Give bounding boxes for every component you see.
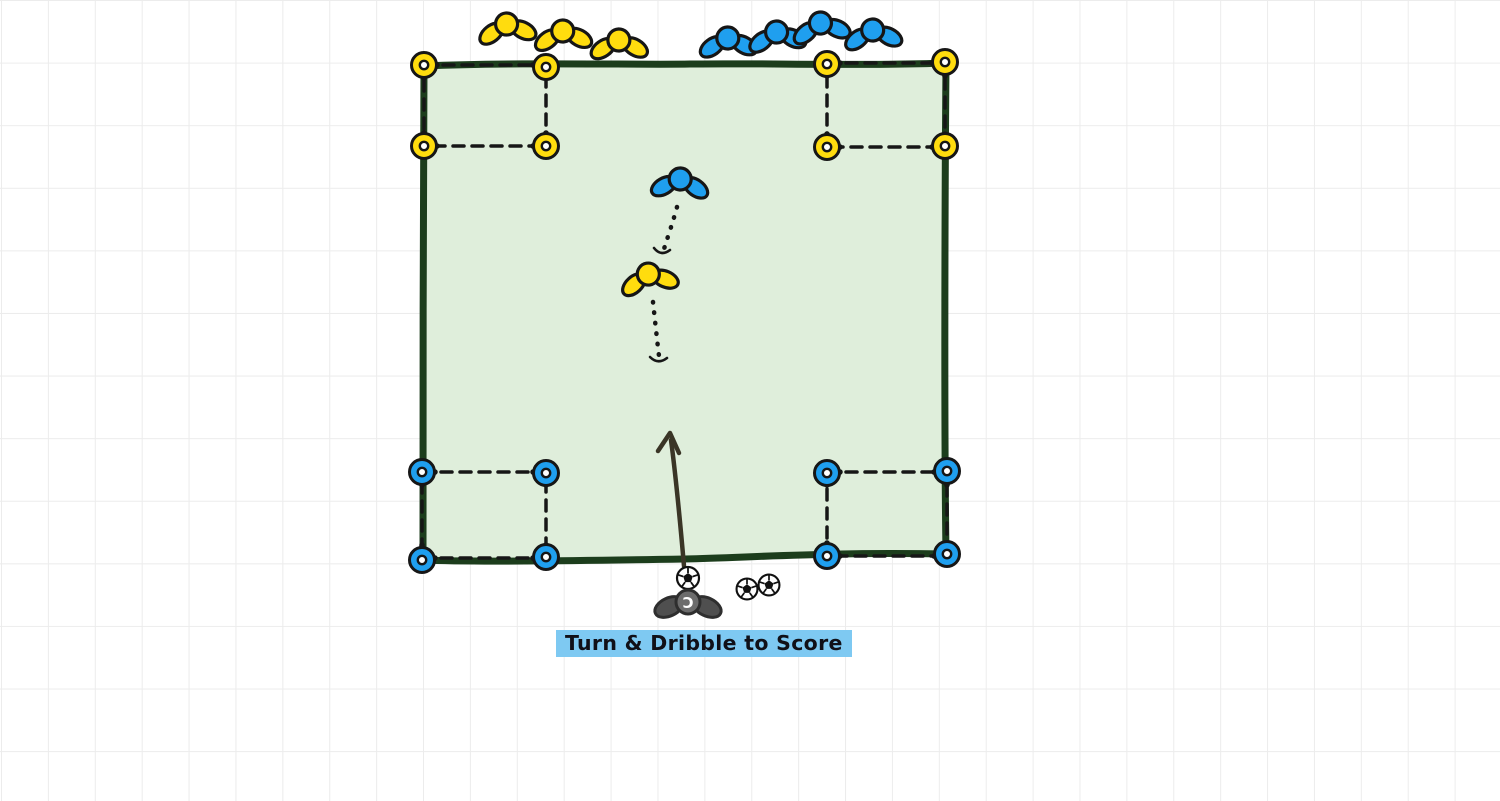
whiteboard-canvas: { "colors": { "canvas-bg": "#FFFFFF", "g… [0,0,1500,801]
coach-icon[interactable]: C [652,590,725,621]
yellow-player-icon[interactable] [530,18,596,55]
soccer-ball-icon[interactable] [737,579,758,600]
drill-title[interactable]: Turn & Dribble to Score [556,630,852,657]
field-rect[interactable] [423,63,946,561]
blue-cone-ring-icon[interactable] [935,542,960,567]
blue-cone-ring-icon[interactable] [534,461,559,486]
blue-cone-ring-icon[interactable] [410,548,435,573]
yellow-player-icon[interactable] [474,10,540,50]
blue-cone-ring-icon[interactable] [534,545,559,570]
blue-cone-ring-icon[interactable] [935,459,960,484]
yellow-cone-ring-icon[interactable] [933,134,958,159]
yellow-cone-ring-icon[interactable] [534,55,559,80]
blue-cone-ring-icon[interactable] [815,461,840,486]
yellow-player-icon[interactable] [587,28,651,63]
yellow-cone-ring-icon[interactable] [412,134,437,159]
soccer-ball-icon[interactable] [759,575,780,596]
yellow-cone-ring-icon[interactable] [534,134,559,159]
blue-player-icon[interactable] [840,16,906,54]
yellow-cone-ring-icon[interactable] [412,53,437,78]
blue-cone-ring-icon[interactable] [815,544,840,569]
blue-cone-ring-icon[interactable] [410,460,435,485]
coach-initial: C [682,594,693,612]
drill-diagram: C [0,0,1500,801]
soccer-ball-icon[interactable] [677,567,699,589]
yellow-cone-ring-icon[interactable] [815,135,840,160]
yellow-cone-ring-icon[interactable] [815,52,840,77]
yellow-cone-ring-icon[interactable] [933,50,958,75]
